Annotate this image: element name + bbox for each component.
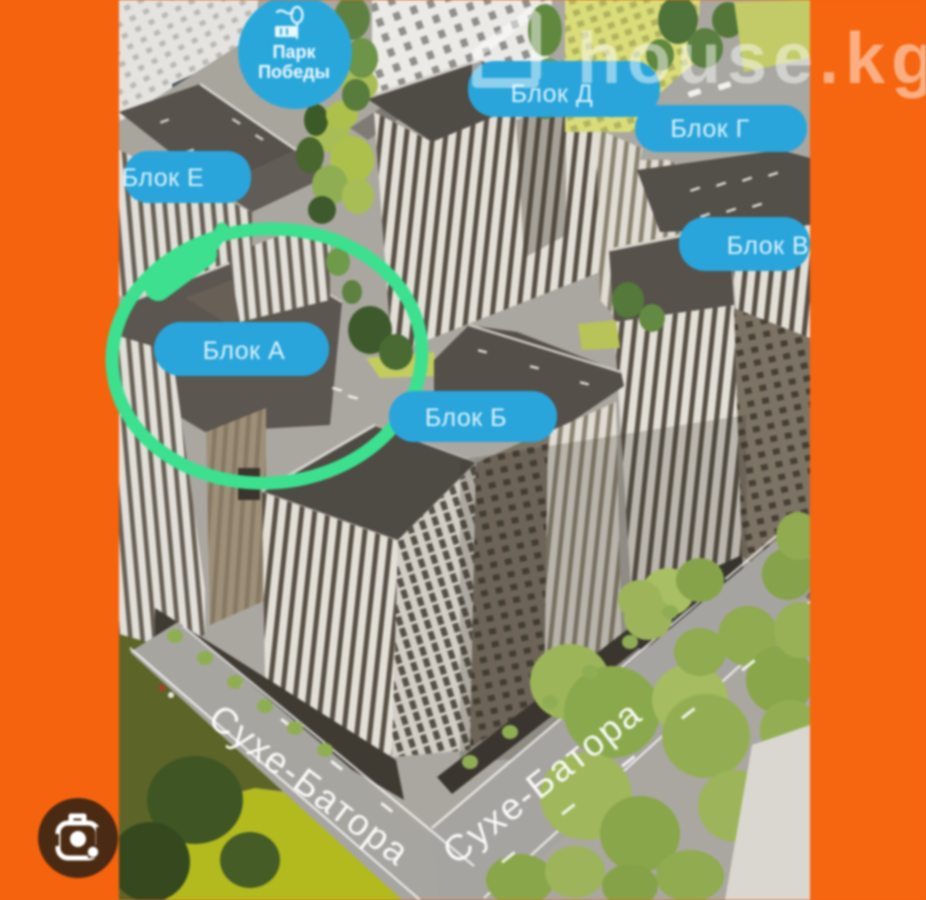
svg-text:Блок Б: Блок Б [425,404,507,432]
svg-text:Блок А: Блок А [203,337,285,365]
svg-text:house.kg: house.kg [577,19,926,99]
svg-text:Блок Е: Блок Е [122,164,204,192]
svg-text:Победы: Победы [258,62,330,82]
svg-text:Парк: Парк [273,42,317,62]
svg-text:Блок В: Блок В [727,232,809,260]
svg-text:Блок Г: Блок Г [670,115,749,143]
